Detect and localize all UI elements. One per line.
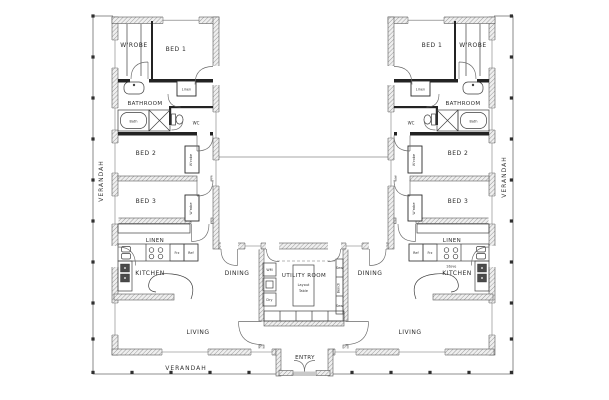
left-linen-cupboard [118,224,190,233]
windows [112,17,495,355]
left-bathroom-label: BATHROOM [127,101,162,107]
utility-room-label: UTILITY ROOM [282,273,326,279]
right-linen-cupboard [417,224,489,233]
right-wc-label: WC [408,121,415,126]
utility-bench-label: Bench [337,283,341,294]
entry-label: ENTRY [295,355,315,361]
utility-dry-label: Dry [266,298,272,302]
right-ref-label: Ref [413,251,419,255]
left-linen-label: LINEN [146,238,164,244]
left-bed3-label: BED 3 [136,198,157,205]
right-vanity-basin [463,82,483,94]
right-bed2-label: BED 2 [448,150,469,157]
left-linen-small-label: Linen [182,88,191,92]
right-living-label: LIVING [398,329,421,336]
left-bath-label: Bath [129,120,137,124]
left-bed2-label: BED 2 [136,150,157,157]
right-dining-label: DINING [358,270,383,277]
left-kitchen-bench [118,244,198,291]
right-toilet [424,114,436,125]
right-linen-label: LINEN [443,238,461,244]
left-kitchen-appliances [121,264,130,282]
entry-porch: ENTRY [294,355,317,376]
left-bed2-wrobe-label: W'robe [189,154,193,166]
right-shower [437,110,458,131]
floor-plan-drawing: VERANDAH VERANDAH VERANDAH [0,0,609,400]
wall-openings [112,17,496,356]
utility-layout-word1: Layout [298,283,310,287]
verandah-posts [91,14,513,374]
left-frz-label: Frz [174,251,179,255]
floor-plan-page: VERANDAH VERANDAH VERANDAH [0,0,609,400]
left-bed1-label: BED 1 [166,46,187,53]
entry-paving [294,372,317,377]
utility-layout-word2: Table [298,289,308,293]
left-ref-label: Ref [188,251,194,255]
right-kitchen-label: KITCHEN [442,270,472,277]
right-frz-label: Frz [427,251,432,255]
verandah-perimeter: VERANDAH VERANDAH VERANDAH [91,14,513,374]
interior-partitions [118,21,489,136]
utility-room: WM Dry Sew Bench Sew UTILITY ROOM Layout… [263,259,344,321]
right-bed1-label: BED 1 [422,42,443,49]
left-wc-label: WC [193,121,200,126]
right-bed2-wrobe-label: W'robe [412,154,416,166]
left-shower [149,110,170,131]
left-dining-label: DINING [225,270,250,277]
left-bed3-wrobe-label: W'robe [189,202,193,214]
verandah-label-left: VERANDAH [98,160,105,202]
left-vanity-basin [124,82,144,94]
left-wrobe-label: W'ROBE [120,42,147,49]
right-bed3-wrobe-label: W'robe [412,202,416,214]
right-linen-small-label: Linen [416,88,425,92]
right-kitchen-appliances [478,264,487,282]
left-living-label: LIVING [186,329,209,336]
verandah-label-bottom: VERANDAH [165,365,207,372]
utility-sew-lower-label: Sew [336,304,343,308]
exterior-walls [112,17,495,376]
verandah-label-right: VERANDAH [501,156,508,198]
right-bed3-label: BED 3 [448,198,469,205]
utility-wm-label: WM [266,268,272,272]
right-stove-label: Stove [447,265,457,269]
utility-sew-upper-label: Sew [336,266,343,270]
right-bath-label: Bath [469,120,477,124]
right-bathroom-label: BATHROOM [445,101,480,107]
left-toilet [172,114,184,125]
left-kitchen-label: KITCHEN [135,270,165,277]
right-wrobe-label: W'ROBE [459,42,486,49]
